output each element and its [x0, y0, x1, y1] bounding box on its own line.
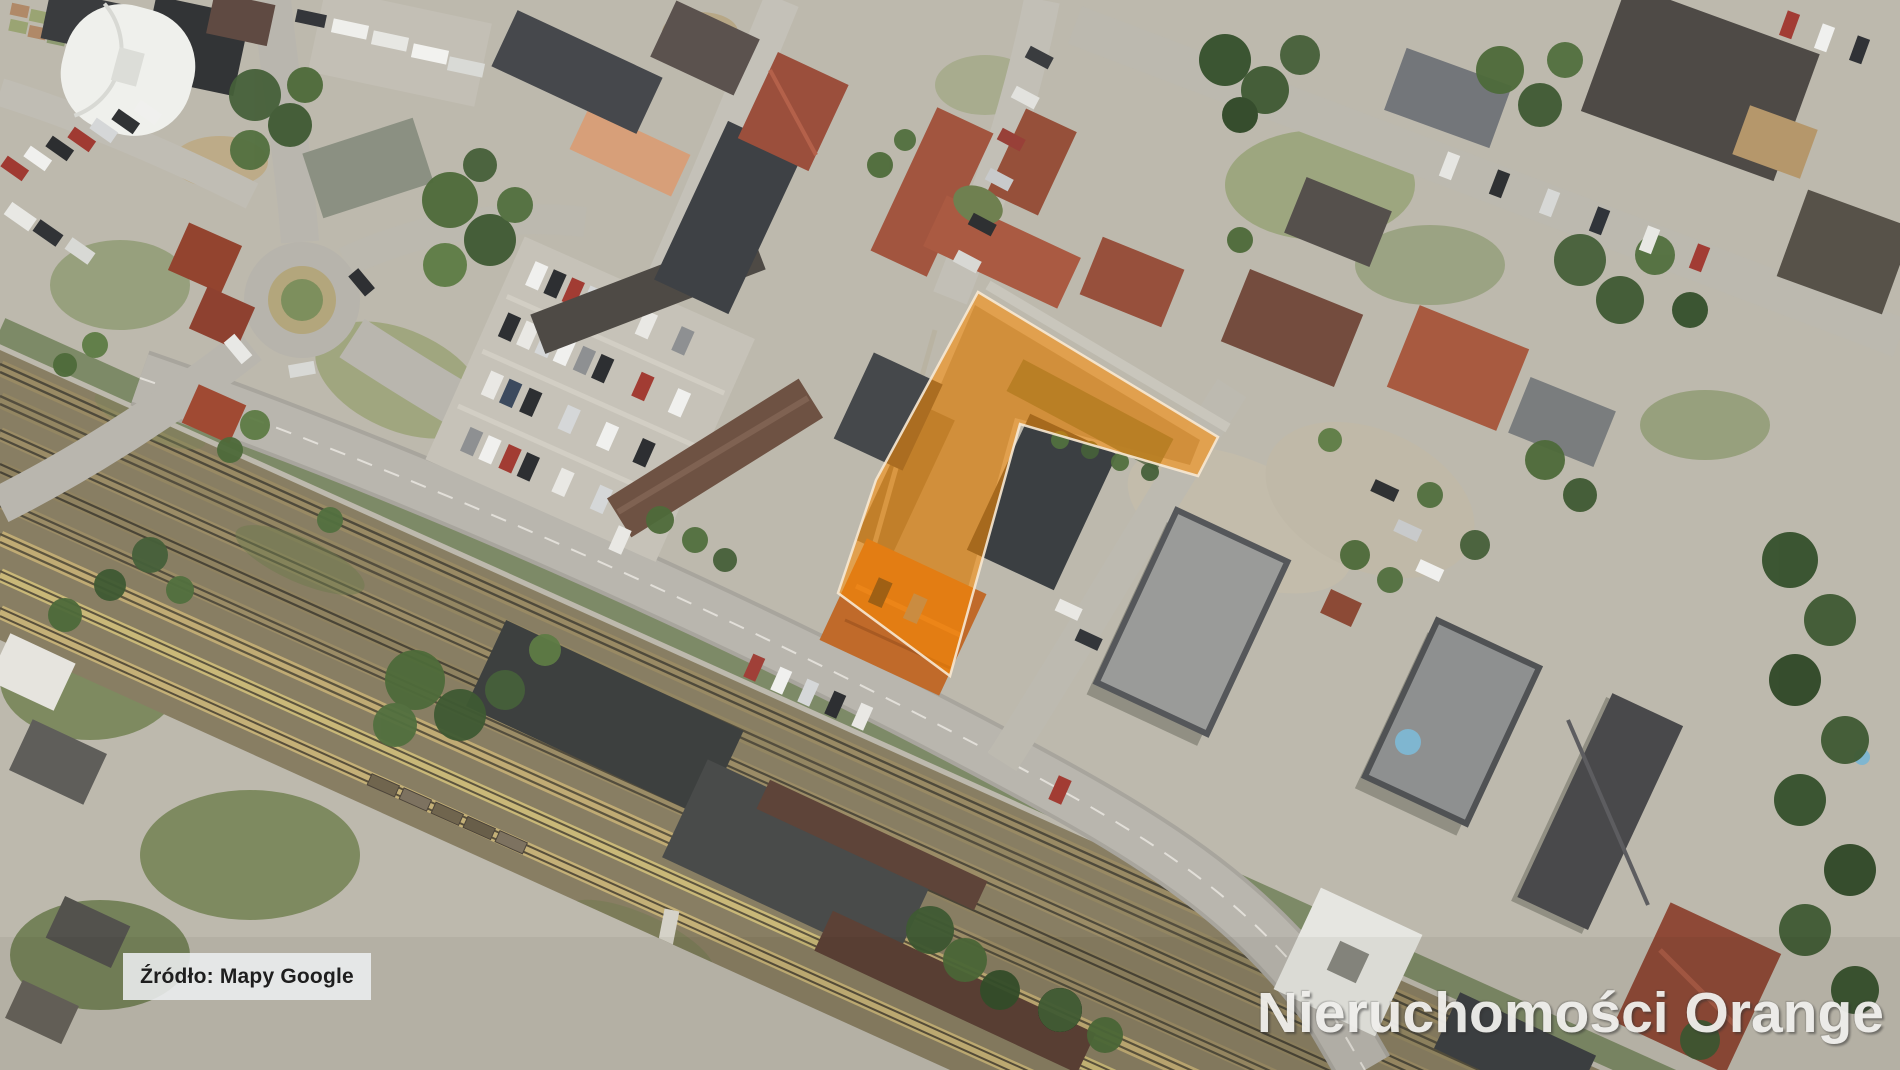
watermark: Nieruchomości Orange [1257, 980, 1884, 1046]
listing-image: Źródło: Mapy Google Nieruchomości Orange [0, 0, 1900, 1070]
map-source-text: Źródło: Mapy Google [140, 965, 354, 989]
satellite-map [0, 0, 1900, 1070]
watermark-text: Nieruchomości Orange [1257, 981, 1884, 1045]
swimming-pool [1395, 729, 1421, 755]
map-source-label: Źródło: Mapy Google [123, 953, 371, 1000]
